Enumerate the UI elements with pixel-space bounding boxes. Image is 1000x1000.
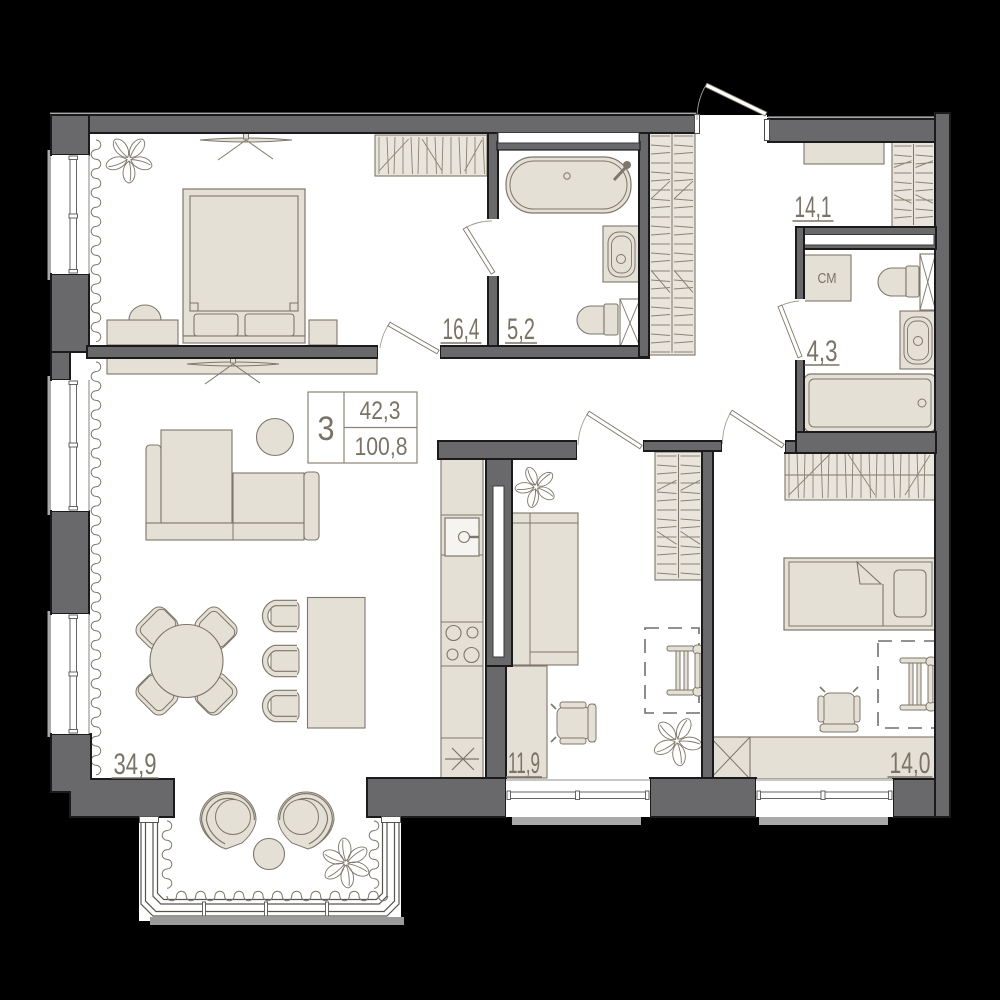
- svg-text:11,9: 11,9: [508, 747, 540, 780]
- svg-text:СМ: СМ: [818, 271, 837, 287]
- svg-text:14,0: 14,0: [890, 747, 931, 780]
- svg-text:16,4: 16,4: [443, 313, 480, 346]
- svg-text:14,1: 14,1: [795, 191, 832, 224]
- svg-text:3: 3: [318, 410, 335, 448]
- svg-text:100,8: 100,8: [355, 433, 408, 461]
- svg-text:5,2: 5,2: [507, 313, 535, 346]
- svg-text:42,3: 42,3: [360, 397, 401, 425]
- svg-text:34,9: 34,9: [114, 748, 157, 781]
- svg-text:4,3: 4,3: [807, 335, 838, 368]
